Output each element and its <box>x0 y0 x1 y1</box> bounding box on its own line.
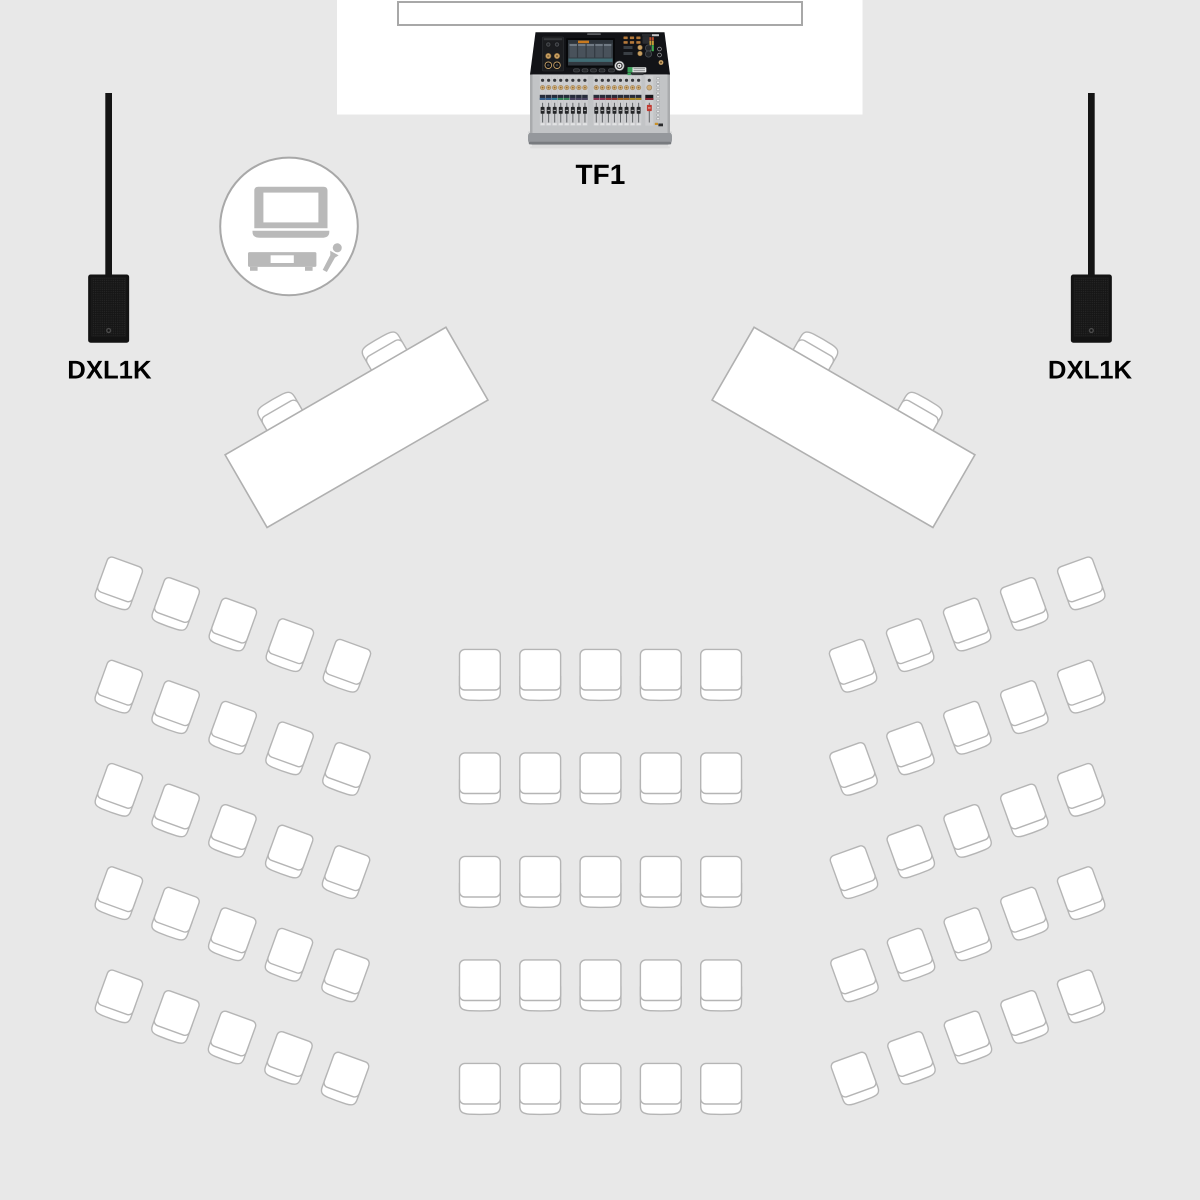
svg-text:TF1: TF1 <box>576 159 626 190</box>
svg-text:DXL1K: DXL1K <box>67 357 152 385</box>
svg-text:DXL1K: DXL1K <box>1048 357 1133 385</box>
